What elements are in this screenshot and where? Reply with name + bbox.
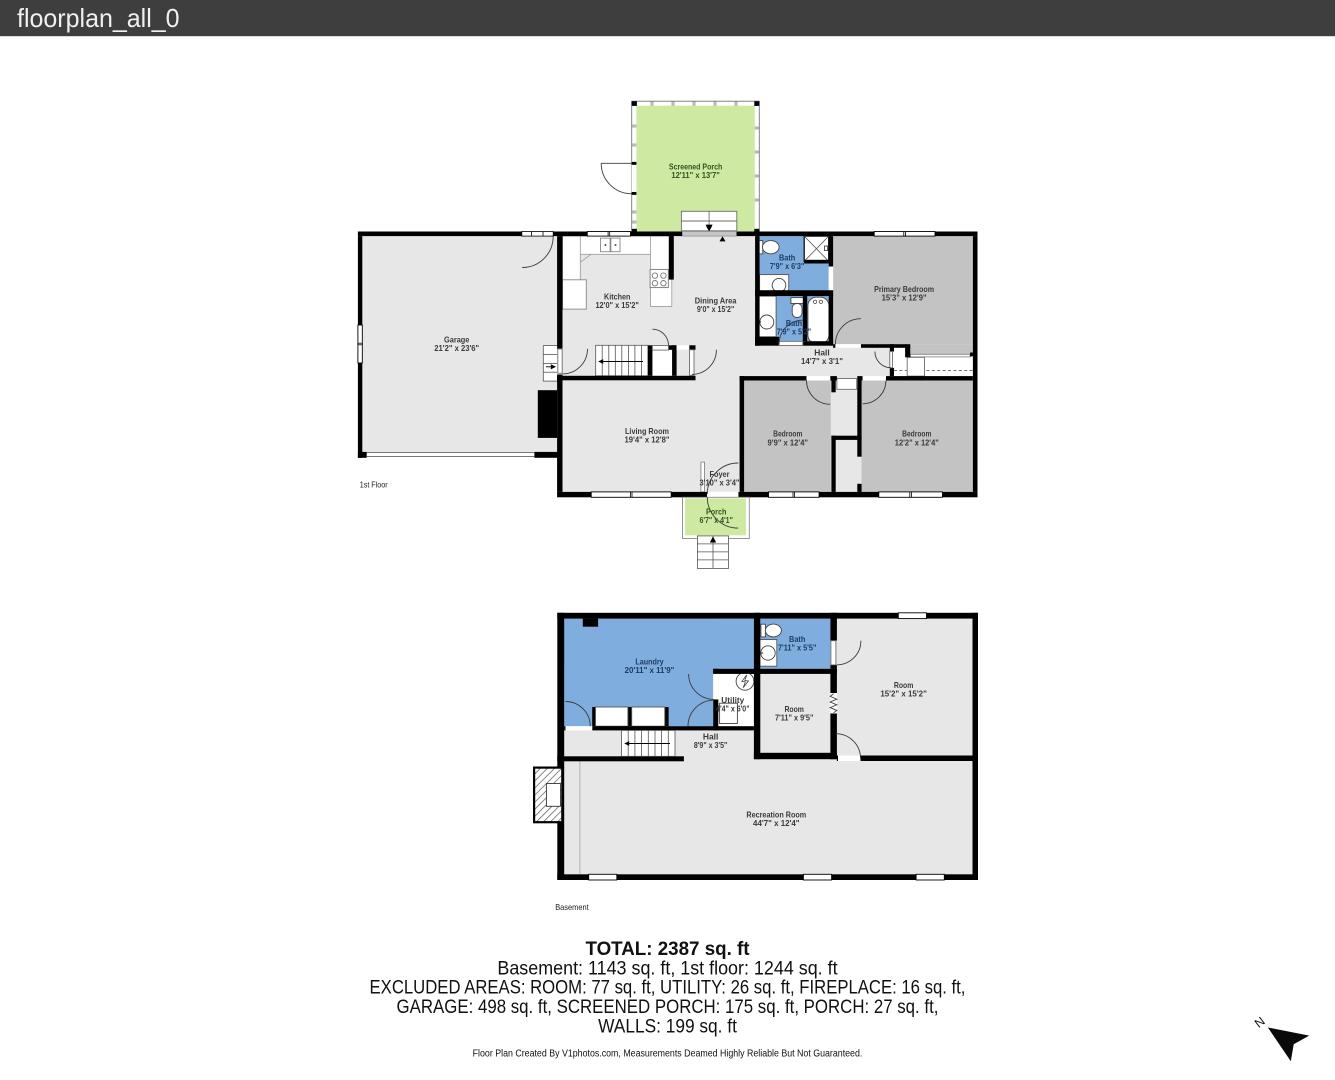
svg-text:7'11" x 5'5": 7'11" x 5'5" (778, 644, 817, 653)
svg-text:20'11" x 11'9": 20'11" x 11'9" (625, 666, 675, 675)
svg-text:Bedroom: Bedroom (902, 429, 932, 439)
svg-text:21'2" x 23'6": 21'2" x 23'6" (434, 344, 479, 353)
svg-text:Bath: Bath (779, 252, 795, 262)
svg-text:Hall: Hall (703, 731, 719, 741)
svg-text:TOTAL: 2387 sq. ft: TOTAL: 2387 sq. ft (585, 939, 750, 960)
svg-text:12'2" x 12'4": 12'2" x 12'4" (895, 438, 939, 447)
svg-text:Dining Area: Dining Area (695, 296, 737, 306)
svg-text:Garage: Garage (444, 334, 470, 344)
svg-text:Screened Porch: Screened Porch (669, 161, 722, 171)
svg-text:7'11" x 9'5": 7'11" x 9'5" (775, 714, 814, 723)
svg-text:floorplan_all_0: floorplan_all_0 (17, 3, 180, 33)
svg-text:15'3" x 12'9": 15'3" x 12'9" (882, 294, 927, 303)
svg-text:Room: Room (784, 704, 804, 714)
svg-text:WALLS: 199 sq. ft: WALLS: 199 sq. ft (598, 1017, 737, 1038)
svg-text:Bath: Bath (789, 634, 805, 644)
svg-text:Room: Room (894, 680, 914, 690)
svg-text:Utility: Utility (721, 695, 744, 705)
svg-text:3'10" x 3'4": 3'10" x 3'4" (700, 479, 740, 488)
svg-text:8'9" x 3'5": 8'9" x 3'5" (694, 741, 728, 750)
svg-text:6'7" x 4'1": 6'7" x 4'1" (699, 516, 733, 525)
svg-text:Bath: Bath (786, 318, 802, 328)
svg-text:Living Room: Living Room (625, 426, 669, 436)
svg-text:Recreation Room: Recreation Room (746, 809, 806, 819)
svg-text:Primary Bedroom: Primary Bedroom (874, 284, 934, 294)
svg-text:Basement: Basement (555, 902, 589, 912)
svg-text:Kitchen: Kitchen (604, 291, 630, 301)
svg-text:14'7" x 3'1": 14'7" x 3'1" (801, 357, 843, 366)
svg-text:12'11" x 13'7": 12'11" x 13'7" (671, 171, 720, 180)
svg-text:15'2" x 15'2": 15'2" x 15'2" (880, 690, 927, 699)
svg-text:7'9" x 6'3": 7'9" x 6'3" (770, 262, 805, 271)
svg-text:GARAGE: 498 sq. ft, SCREENED P: GARAGE: 498 sq. ft, SCREENED PORCH: 175 … (397, 997, 939, 1018)
svg-text:44'7" x 12'4": 44'7" x 12'4" (753, 819, 800, 828)
svg-text:Hall: Hall (814, 347, 830, 357)
svg-text:1st Floor: 1st Floor (360, 480, 388, 490)
svg-text:7'9" x 5'2": 7'9" x 5'2" (777, 328, 812, 337)
svg-text:4'4" x 6'0": 4'4" x 6'0" (716, 705, 750, 714)
svg-text:Bedroom: Bedroom (773, 429, 803, 439)
svg-text:9'0" x 15'2": 9'0" x 15'2" (697, 305, 735, 314)
svg-text:19'4" x 12'8": 19'4" x 12'8" (625, 436, 670, 445)
svg-text:Foyer: Foyer (710, 469, 731, 479)
svg-text:Porch: Porch (706, 507, 727, 517)
svg-text:Basement: 1143 sq. ft, 1st flo: Basement: 1143 sq. ft, 1st floor: 1244 s… (497, 959, 838, 980)
svg-text:Floor Plan Created By V1photos: Floor Plan Created By V1photos.com, Meas… (473, 1049, 863, 1060)
svg-text:EXCLUDED AREAS: ROOM: 77 sq. f: EXCLUDED AREAS: ROOM: 77 sq. ft, UTILITY… (370, 978, 966, 999)
svg-text:9'9" x 12'4": 9'9" x 12'4" (768, 438, 809, 447)
svg-text:12'0" x 15'2": 12'0" x 15'2" (595, 301, 639, 310)
svg-text:Laundry: Laundry (635, 656, 664, 666)
